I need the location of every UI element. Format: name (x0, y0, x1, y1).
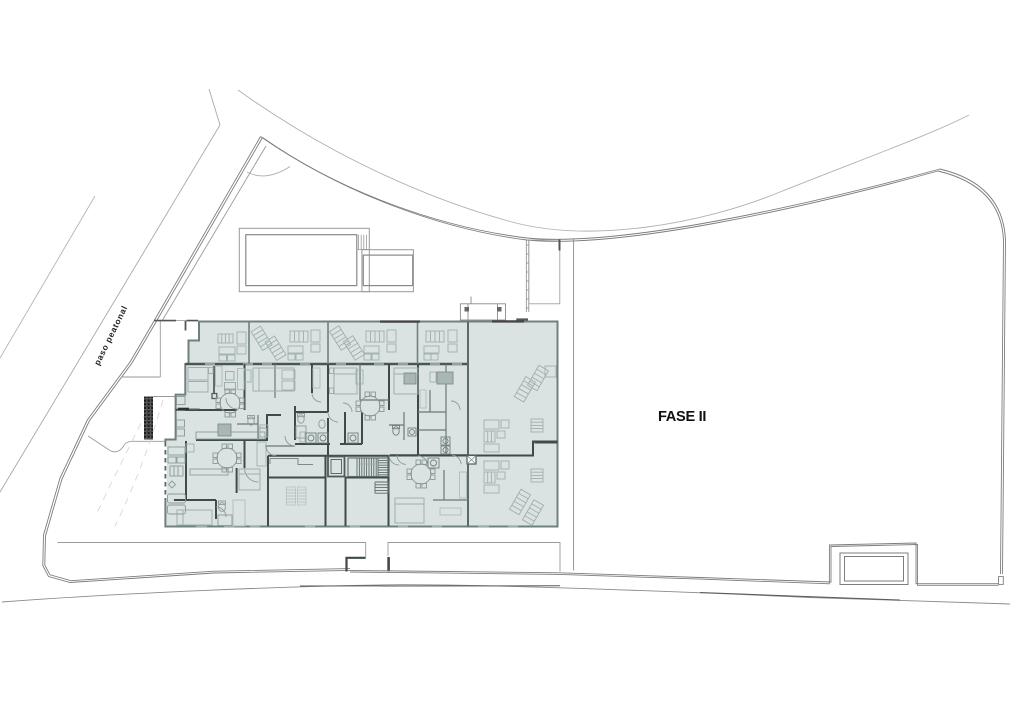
svg-text:FASE II: FASE II (658, 409, 706, 425)
